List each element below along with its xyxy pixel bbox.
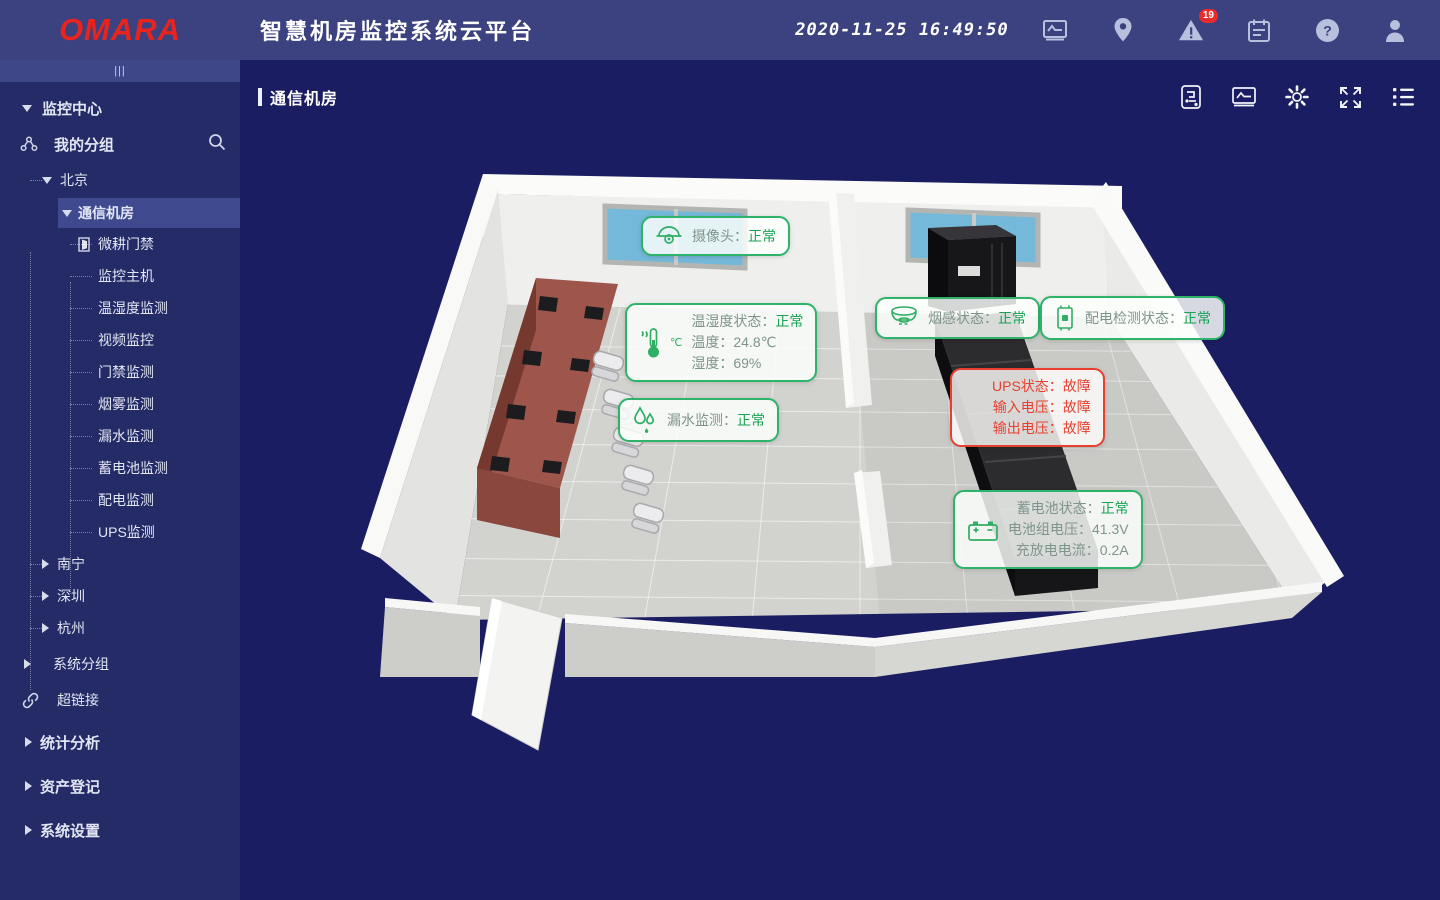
chevron-right-icon [42, 623, 49, 633]
water-leak-tag[interactable]: 漏水监测：正常 [618, 398, 779, 442]
sidebar-item-label: 蓄电池监测 [98, 458, 168, 478]
tag-value: 69% [733, 355, 761, 371]
link-icon [22, 692, 39, 709]
sidebar-item-device[interactable]: 烟雾监测 [0, 388, 240, 420]
camera-status-tag[interactable]: 摄像头：正常 [641, 216, 790, 256]
sidebar-item-device[interactable]: 配电监测 [0, 484, 240, 516]
celsius-unit: ℃ [670, 336, 682, 349]
app-window: OMARA 智慧机房监控系统云平台 2020-11-25 16:49:50 [0, 0, 1440, 900]
group-icon [20, 136, 38, 152]
tag-label: 烟感状态： [928, 310, 998, 326]
sidebar-item-device[interactable]: 视频监控 [0, 324, 240, 356]
sidebar-collapse-handle[interactable]: ||| [0, 60, 240, 82]
sidebar-item-device[interactable]: 蓄电池监测 [0, 452, 240, 484]
calendar-icon[interactable] [1246, 17, 1272, 43]
sidebar-item-settings[interactable]: 系统设置 [0, 810, 240, 850]
scene-toolbar [1178, 84, 1416, 110]
sidebar-item-device[interactable]: 温湿度监测 [0, 292, 240, 324]
tag-value: 正常 [775, 313, 803, 329]
sidebar-item-label: UPS监测 [98, 522, 155, 542]
chevron-right-icon [25, 825, 32, 835]
digital-clock: 2020-11-25 16:49:50 [793, 20, 1010, 40]
smoke-detector-icon [889, 305, 919, 331]
thermometer-icon: ℃ [639, 326, 682, 360]
chevron-right-icon [42, 559, 49, 569]
sidebar-item-label: 统计分析 [40, 732, 100, 753]
temperature-humidity-tag[interactable]: ℃ 温湿度状态：正常 温度：24.8℃ 湿度：69% [625, 303, 817, 382]
sidebar-item-label: 资产登记 [40, 776, 100, 797]
sidebar-item-label: 超链接 [57, 690, 99, 710]
sidebar-item-room-selected[interactable]: 通信机房 [58, 198, 240, 228]
tag-label: UPS状态： [992, 378, 1063, 394]
tag-label: 配电检测状态： [1085, 310, 1183, 326]
sidebar-item-device[interactable]: 监控主机 [0, 260, 240, 292]
app-title: 智慧机房监控系统云平台 [260, 14, 535, 46]
sidebar-item-system-groups[interactable]: 系统分组 [0, 646, 240, 682]
alert-count-badge: 19 [1199, 9, 1218, 23]
logo-box: OMARA [0, 12, 240, 48]
sidebar-item-city-shenzhen[interactable]: 深圳 [0, 580, 240, 612]
tag-value: 正常 [748, 228, 776, 244]
list-icon[interactable] [1390, 84, 1416, 110]
sidebar-item-city-nanning[interactable]: 南宁 [0, 548, 240, 580]
smoke-status-tag[interactable]: 烟感状态：正常 [875, 297, 1040, 339]
sidebar-item-device[interactable]: 漏水监测 [0, 420, 240, 452]
chevron-down-icon [22, 105, 32, 112]
monitor-chart-icon[interactable] [1042, 17, 1068, 43]
gear-icon[interactable] [1284, 84, 1310, 110]
sidebar-item-label: 监控中心 [42, 98, 102, 119]
tag-label: 输出电压： [993, 420, 1063, 436]
chevron-right-icon [25, 781, 32, 791]
tag-label: 温湿度状态： [691, 313, 775, 329]
help-icon[interactable]: ? [1314, 17, 1340, 43]
alert-triangle-icon[interactable]: 19 [1178, 17, 1204, 43]
sidebar-item-label: 门禁监测 [98, 362, 154, 382]
tag-value: 正常 [1101, 500, 1129, 516]
search-icon[interactable] [208, 133, 226, 155]
breadcrumb: 通信机房 [258, 85, 338, 109]
sidebar-item-label: 南宁 [57, 554, 85, 574]
sidebar-item-device-door[interactable]: 微耕门禁 [0, 228, 240, 260]
chevron-down-icon [42, 177, 52, 184]
tag-value: 0.2A [1100, 542, 1129, 558]
sidebar-nav: ||| 监控中心 我的分组 北京 通信机房 [0, 60, 240, 900]
sidebar-item-label: 配电监测 [98, 490, 154, 510]
sidebar-item-label: 深圳 [57, 586, 85, 606]
report-icon[interactable] [1178, 84, 1204, 110]
tag-label: 湿度： [691, 355, 733, 371]
sidebar-item-city-beijing[interactable]: 北京 [0, 162, 240, 198]
sidebar-item-label: 通信机房 [78, 203, 134, 223]
tag-value: 正常 [737, 412, 765, 428]
header-icon-bar: 19 ? [1042, 17, 1408, 43]
battery-icon [967, 517, 999, 543]
water-drops-icon [632, 406, 658, 434]
tag-label: 摄像头： [692, 228, 748, 244]
chevron-down-icon [62, 210, 72, 217]
sidebar-item-label: 系统分组 [53, 654, 109, 674]
location-pin-icon[interactable] [1110, 17, 1136, 43]
tag-label: 充放电电流： [1016, 542, 1100, 558]
tag-value: 正常 [998, 310, 1026, 326]
tag-value: 41.3V [1092, 521, 1129, 537]
chevron-right-icon [25, 737, 32, 747]
sidebar-item-label: 漏水监测 [98, 426, 154, 446]
screen-icon[interactable] [1231, 84, 1257, 110]
room-3d-view [240, 60, 1440, 900]
sidebar-item-assets[interactable]: 资产登记 [0, 766, 240, 806]
sidebar-item-label: 系统设置 [40, 820, 100, 841]
sidebar-item-label: 北京 [60, 170, 88, 190]
user-icon[interactable] [1382, 17, 1408, 43]
sidebar-item-monitor-center[interactable]: 监控中心 [0, 90, 240, 126]
chevron-right-icon [42, 591, 49, 601]
top-header: OMARA 智慧机房监控系统云平台 2020-11-25 16:49:50 [0, 0, 1440, 60]
sidebar-item-statistics[interactable]: 统计分析 [0, 722, 240, 762]
breadcrumb-bar [258, 88, 262, 106]
tag-label: 漏水监测： [667, 412, 737, 428]
sidebar-item-label: 微耕门禁 [98, 234, 154, 254]
main-header-row: 通信机房 [240, 60, 1440, 120]
sidebar-item-label: 杭州 [57, 618, 85, 638]
chevron-right-icon [24, 659, 31, 669]
power-module-icon [1054, 304, 1076, 332]
open-door [472, 598, 562, 750]
battery-status-tag[interactable]: 蓄电池状态：正常 电池组电压：41.3V 充放电电流：0.2A [953, 490, 1143, 569]
sidebar-item-city-hangzhou[interactable]: 杭州 [0, 612, 240, 644]
sidebar-item-label: 我的分组 [54, 134, 114, 155]
tag-value: 24.8℃ [733, 334, 776, 350]
page-title: 通信机房 [270, 85, 338, 109]
door-icon [78, 237, 91, 252]
camera-icon [655, 224, 683, 248]
main-content: 通信机房 [240, 60, 1440, 900]
sidebar-item-label: 温湿度监测 [98, 298, 168, 318]
tag-value: 故障 [1063, 378, 1091, 394]
brand-logo: OMARA [59, 12, 181, 48]
power-distribution-tag[interactable]: 配电检测状态：正常 [1040, 296, 1225, 340]
tag-value: 正常 [1183, 310, 1211, 326]
tag-value: 故障 [1063, 399, 1091, 415]
sidebar-item-my-groups[interactable]: 我的分组 [0, 126, 240, 162]
sidebar-item-device[interactable]: 门禁监测 [0, 356, 240, 388]
sidebar-item-label: 监控主机 [98, 266, 154, 286]
svg-text:?: ? [1323, 22, 1332, 38]
tag-label: 温度： [691, 334, 733, 350]
sidebar-item-label: 视频监控 [98, 330, 154, 350]
tag-label: 蓄电池状态： [1017, 500, 1101, 516]
tag-label: 输入电压： [993, 399, 1063, 415]
sidebar-item-device[interactable]: UPS监测 [0, 516, 240, 548]
room-3d-scene: 摄像头：正常 ℃ 温湿度状态：正常 温度：24.8℃ 湿度：69% [240, 60, 1440, 900]
sidebar-item-label: 烟雾监测 [98, 394, 154, 414]
fullscreen-icon[interactable] [1337, 84, 1363, 110]
sidebar-item-hyperlink[interactable]: 超链接 [0, 682, 240, 718]
ups-fault-tag[interactable]: UPS状态：故障 输入电压：故障 输出电压：故障 [950, 368, 1105, 447]
tag-label: 电池组电压： [1008, 521, 1092, 537]
tag-value: 故障 [1063, 420, 1091, 436]
